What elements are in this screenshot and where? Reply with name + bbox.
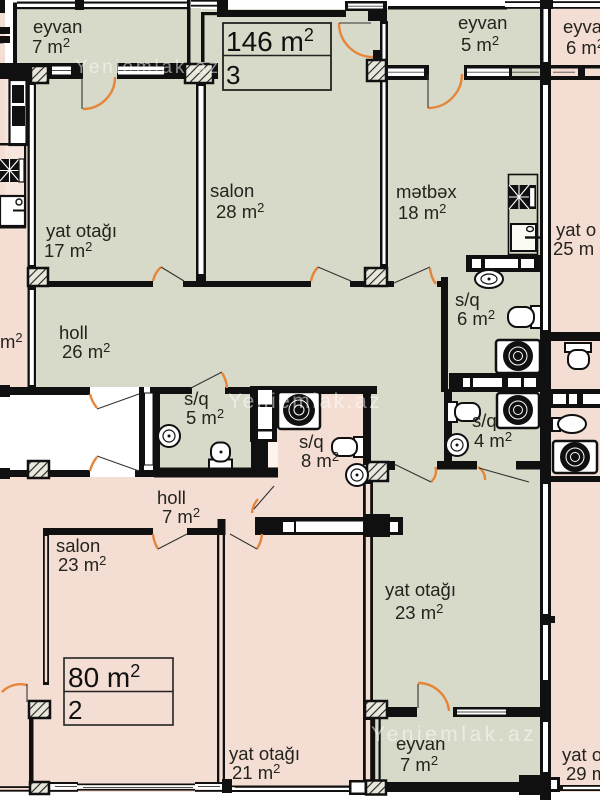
svg-text:26 m2: 26 m2 bbox=[62, 340, 110, 362]
svg-text:holl: holl bbox=[59, 322, 88, 343]
svg-text:yat o: yat o bbox=[562, 744, 600, 765]
svg-text:18 m2: 18 m2 bbox=[398, 201, 446, 223]
svg-text:salon: salon bbox=[56, 535, 100, 556]
svg-text:yat otağı: yat otağı bbox=[229, 743, 300, 764]
svg-text:Yeniemlak.az: Yeniemlak.az bbox=[75, 57, 221, 78]
svg-text:yat otağı: yat otağı bbox=[385, 579, 456, 600]
svg-text:3: 3 bbox=[226, 60, 240, 90]
svg-text:6 m2: 6 m2 bbox=[566, 36, 600, 58]
svg-text:eyvan: eyvan bbox=[33, 16, 82, 37]
svg-text:Yeniemlak.az: Yeniemlak.az bbox=[228, 390, 382, 413]
svg-text:17 m2: 17 m2 bbox=[44, 239, 92, 261]
svg-text:23 m2: 23 m2 bbox=[395, 601, 443, 623]
svg-text:holl: holl bbox=[157, 487, 186, 508]
svg-text:25 m: 25 m bbox=[553, 238, 594, 259]
svg-text:yat o: yat o bbox=[556, 219, 596, 240]
svg-text:21 m2: 21 m2 bbox=[232, 761, 280, 783]
svg-text:s/q: s/q bbox=[299, 431, 324, 452]
svg-text:Yeniemlak.az: Yeniemlak.az bbox=[371, 723, 537, 746]
svg-text:80 m2: 80 m2 bbox=[68, 661, 140, 693]
svg-text:salon: salon bbox=[210, 180, 254, 201]
svg-text:mətbəx: mətbəx bbox=[396, 181, 457, 202]
svg-text:29 m: 29 m bbox=[566, 763, 600, 784]
svg-text:s/q: s/q bbox=[455, 289, 480, 310]
svg-text:23 m2: 23 m2 bbox=[58, 553, 106, 575]
svg-text:eyvan: eyvan bbox=[458, 12, 507, 33]
svg-text:s/q: s/q bbox=[184, 388, 209, 409]
svg-text:28 m2: 28 m2 bbox=[216, 200, 264, 222]
svg-text:146 m2: 146 m2 bbox=[226, 25, 314, 57]
svg-text:2: 2 bbox=[68, 695, 82, 725]
svg-text:yat otağı: yat otağı bbox=[46, 220, 117, 241]
svg-text:eyvan: eyvan bbox=[563, 16, 600, 37]
svg-text:s/q: s/q bbox=[472, 410, 497, 431]
